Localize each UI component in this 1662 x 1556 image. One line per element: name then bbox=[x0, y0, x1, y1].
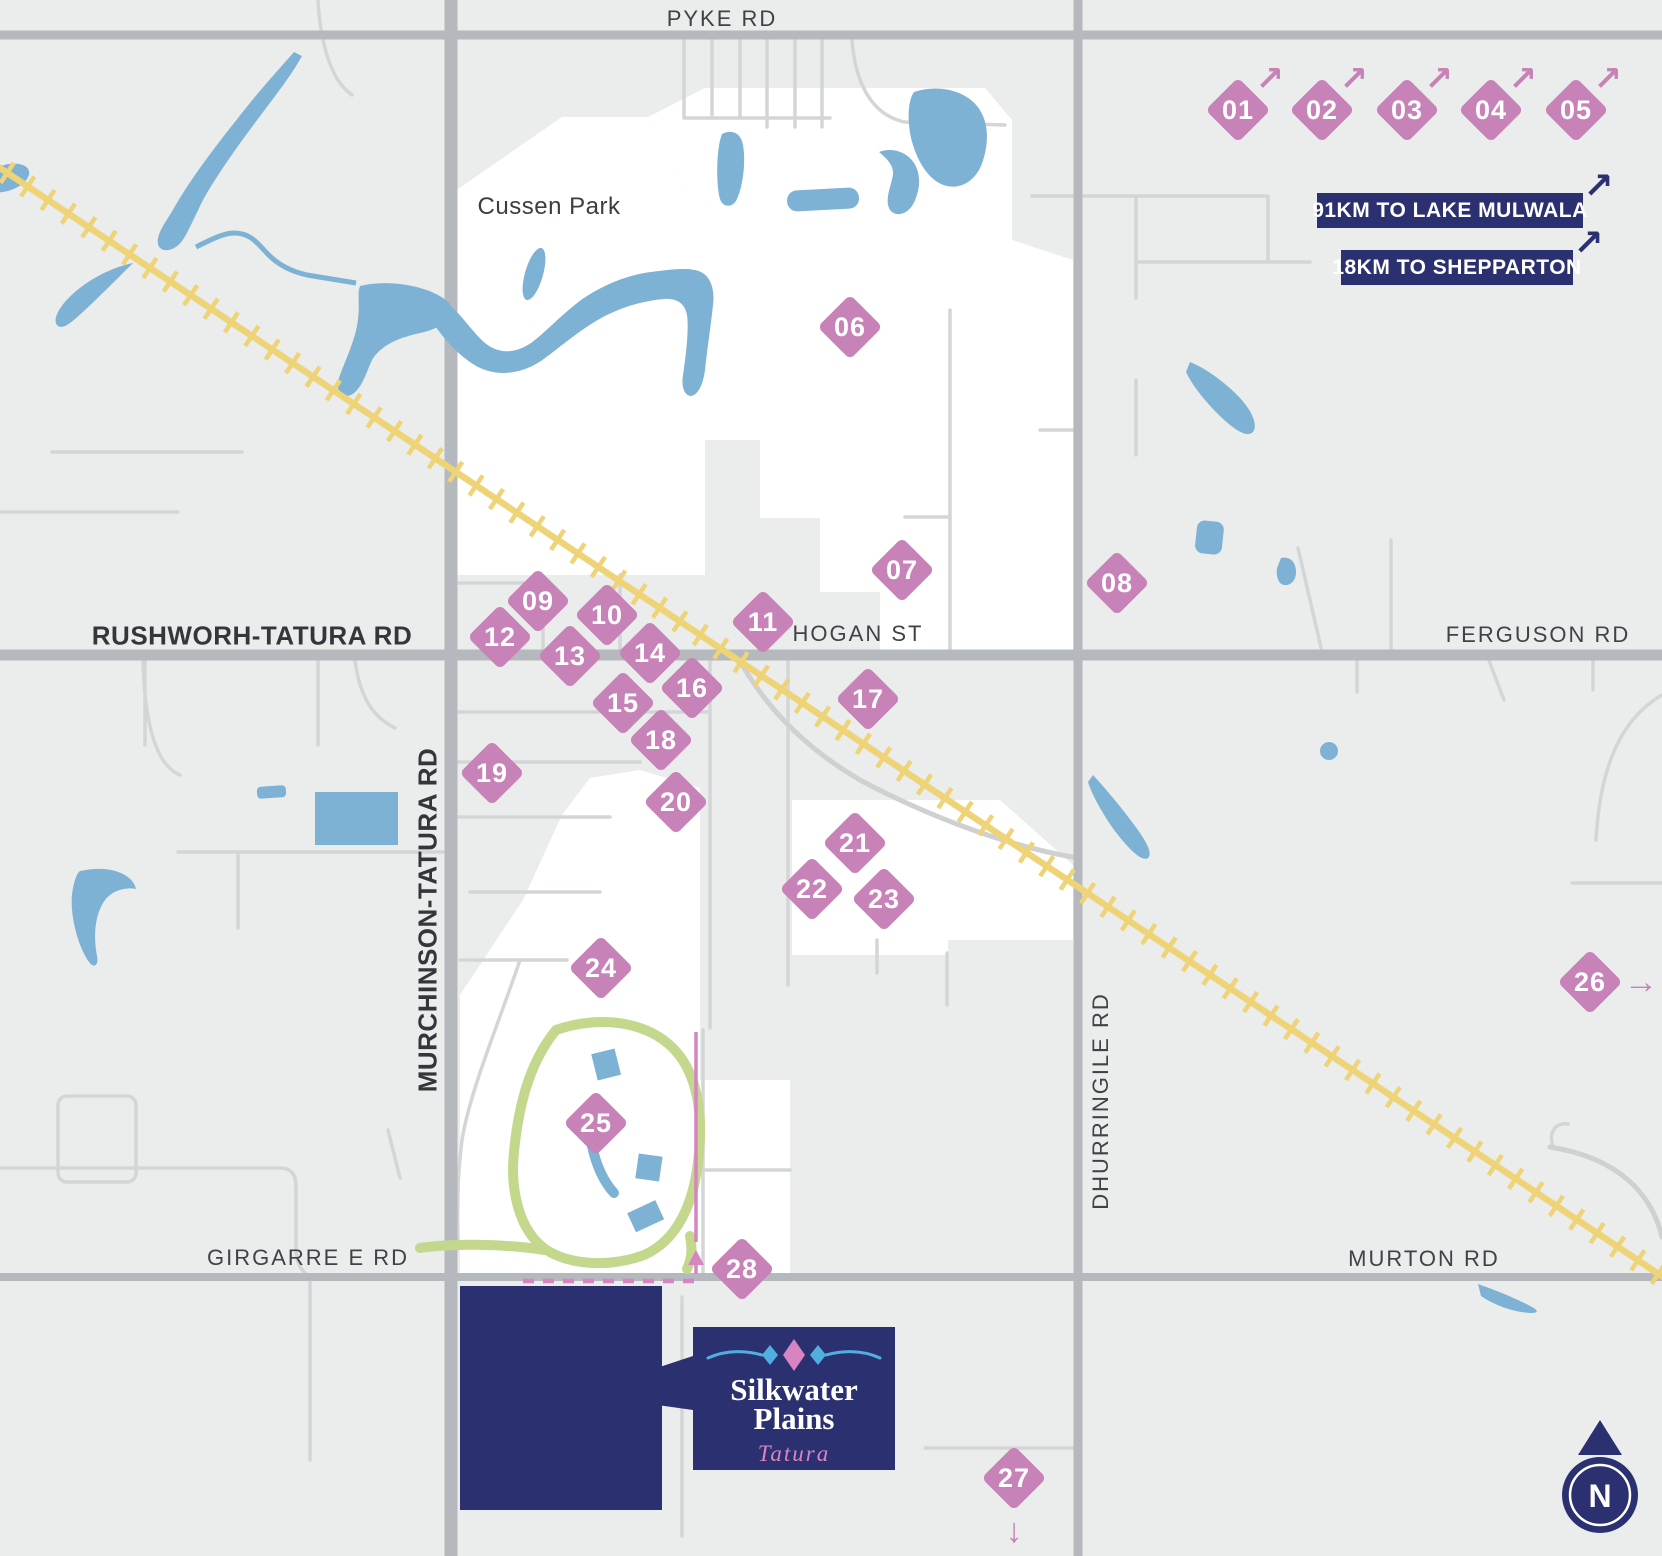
label-ferguson-rd: FERGUSON RD bbox=[1446, 622, 1631, 648]
map-marker-08: 08 bbox=[1085, 551, 1149, 615]
map-marker-25: 25 bbox=[564, 1091, 628, 1155]
marker-number: 06 bbox=[818, 295, 882, 359]
map-marker-19: 19 bbox=[460, 741, 524, 805]
compass-icon: N bbox=[1558, 1414, 1642, 1536]
marker-number: 08 bbox=[1085, 551, 1149, 615]
marker-number: 17 bbox=[836, 667, 900, 731]
map-marker-17: 17 bbox=[836, 667, 900, 731]
label-rushworh-tatura-rd: RUSHWORH-TATURA RD bbox=[92, 621, 412, 652]
marker-number: 12 bbox=[468, 605, 532, 669]
logo-card: SilkwaterPlains Tatura bbox=[693, 1327, 895, 1470]
map-marker-22: 22 bbox=[780, 857, 844, 921]
marker-number: 28 bbox=[710, 1237, 774, 1301]
map-marker-26: 26→ bbox=[1558, 950, 1622, 1014]
map-marker-06: 06 bbox=[818, 295, 882, 359]
label-girgarre-e-rd: GIRGARRE E RD bbox=[207, 1245, 409, 1271]
marker-number: 18 bbox=[629, 708, 693, 772]
badge-arrow-ne-icon: ↗ bbox=[1573, 225, 1604, 261]
label-cussen-park: Cussen Park bbox=[478, 193, 621, 221]
marker-number: 24 bbox=[569, 936, 633, 1000]
marker-number: 25 bbox=[564, 1091, 628, 1155]
distance-badge: 91KM TO LAKE MULWALA↗ bbox=[1317, 193, 1583, 228]
distance-badge: 18KM TO SHEPPARTON↗ bbox=[1341, 250, 1573, 285]
marker-number: 27 bbox=[982, 1446, 1046, 1510]
distance-badge-text: 18KM TO SHEPPARTON bbox=[1332, 256, 1581, 280]
marker-arrow-e-icon: → bbox=[1624, 965, 1658, 999]
label-dhurringile-rd: DHURRINGILE RD bbox=[1088, 992, 1114, 1209]
compass: N bbox=[1558, 1414, 1642, 1536]
compass-north-label: N bbox=[1588, 1478, 1611, 1514]
map-base-graphics bbox=[0, 0, 1662, 1556]
map-marker-23: 23 bbox=[852, 867, 916, 931]
badge-arrow-ne-icon: ↗ bbox=[1583, 168, 1614, 204]
logo-subtitle: Tatura bbox=[693, 1441, 895, 1467]
marker-arrow-ne-icon: ↗ bbox=[1425, 62, 1454, 96]
map-marker-03: 03↗ bbox=[1375, 78, 1439, 142]
marker-number: 11 bbox=[731, 590, 795, 654]
marker-arrow-ne-icon: ↗ bbox=[1594, 62, 1623, 96]
marker-number: 26 bbox=[1558, 950, 1622, 1014]
map-marker-07: 07 bbox=[870, 538, 934, 602]
label-pyke-rd: PYKE RD bbox=[667, 6, 778, 32]
map-marker-20: 20 bbox=[644, 770, 708, 834]
marker-arrow-ne-icon: ↗ bbox=[1509, 62, 1538, 96]
logo-title: SilkwaterPlains bbox=[693, 1375, 895, 1433]
map-marker-11: 11 bbox=[731, 590, 795, 654]
marker-number: 07 bbox=[870, 538, 934, 602]
label-hogan-st: HOGAN ST bbox=[793, 621, 924, 647]
locality-map: PYKE RDCussen ParkRUSHWORH-TATURA RDHOGA… bbox=[0, 0, 1662, 1556]
map-marker-18: 18 bbox=[629, 708, 693, 772]
map-marker-27: 27↓ bbox=[982, 1446, 1046, 1510]
logo-flourish-icon bbox=[704, 1337, 884, 1373]
marker-arrow-ne-icon: ↗ bbox=[1340, 62, 1369, 96]
label-murchinson-tatura-rd: MURCHINSON-TATURA RD bbox=[413, 748, 444, 1093]
label-murton-rd: MURTON RD bbox=[1348, 1246, 1500, 1272]
map-marker-04: 04↗ bbox=[1459, 78, 1523, 142]
map-marker-02: 02↗ bbox=[1290, 78, 1354, 142]
map-marker-01: 01↗ bbox=[1206, 78, 1270, 142]
map-marker-28: 28 bbox=[710, 1237, 774, 1301]
marker-number: 22 bbox=[780, 857, 844, 921]
marker-arrow-s-icon: ↓ bbox=[1006, 1514, 1023, 1548]
marker-number: 19 bbox=[460, 741, 524, 805]
development-parcel bbox=[460, 1286, 693, 1510]
marker-number: 20 bbox=[644, 770, 708, 834]
marker-number: 23 bbox=[852, 867, 916, 931]
map-marker-12: 12 bbox=[468, 605, 532, 669]
distance-badge-text: 91KM TO LAKE MULWALA bbox=[1312, 199, 1588, 223]
marker-arrow-ne-icon: ↗ bbox=[1256, 62, 1285, 96]
map-marker-24: 24 bbox=[569, 936, 633, 1000]
map-marker-05: 05↗ bbox=[1544, 78, 1608, 142]
